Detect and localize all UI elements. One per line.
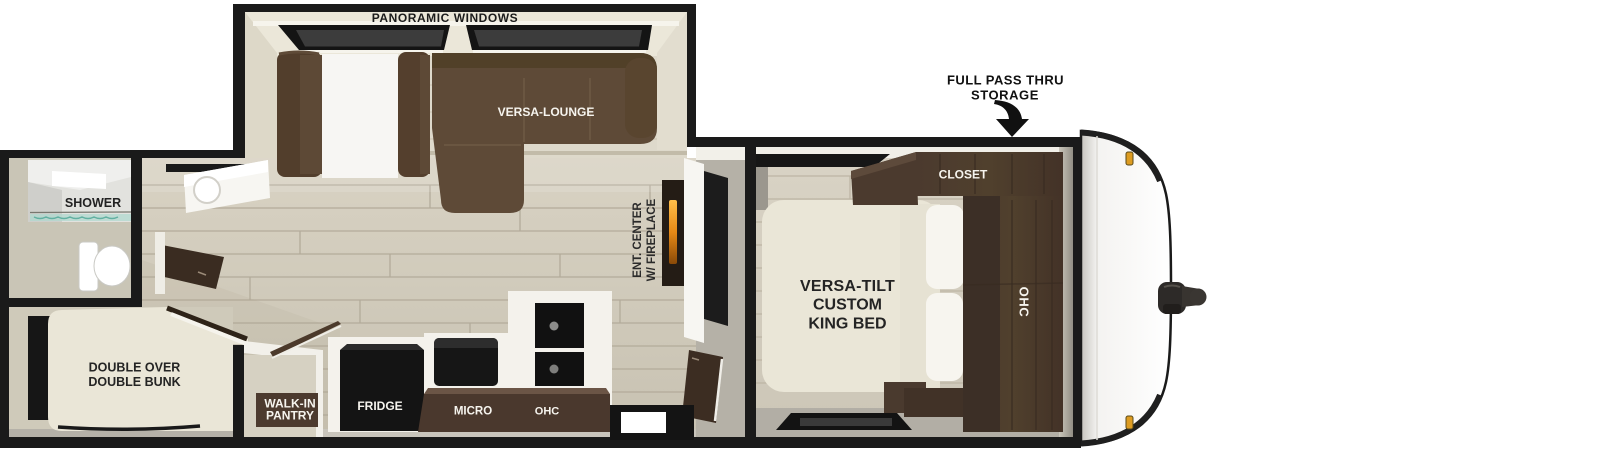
svg-text:DOUBLE BUNK: DOUBLE BUNK	[88, 375, 180, 389]
svg-text:OHC: OHC	[535, 406, 560, 418]
svg-text:OHC: OHC	[1017, 287, 1032, 318]
svg-text:CUSTOM: CUSTOM	[813, 297, 882, 314]
svg-text:PANTRY: PANTRY	[266, 409, 314, 423]
svg-text:VERSA-TILT: VERSA-TILT	[800, 278, 895, 295]
svg-text:DOUBLE OVER: DOUBLE OVER	[89, 361, 181, 375]
svg-text:FRIDGE: FRIDGE	[357, 399, 402, 413]
svg-text:VERSA-LOUNGE: VERSA-LOUNGE	[498, 105, 595, 119]
svg-text:MICRO: MICRO	[454, 406, 492, 418]
svg-text:KING BED: KING BED	[808, 315, 886, 332]
svg-text:SHOWER: SHOWER	[65, 196, 121, 210]
svg-text:FULL PASS THRU: FULL PASS THRU	[947, 73, 1064, 88]
svg-text:W/ FIREPLACE: W/ FIREPLACE	[646, 198, 658, 281]
svg-text:PANORAMIC WINDOWS: PANORAMIC WINDOWS	[372, 11, 518, 25]
svg-text:CLOSET: CLOSET	[939, 168, 988, 182]
svg-text:STORAGE: STORAGE	[971, 88, 1039, 103]
svg-text:ENT. CENTER: ENT. CENTER	[632, 202, 644, 278]
